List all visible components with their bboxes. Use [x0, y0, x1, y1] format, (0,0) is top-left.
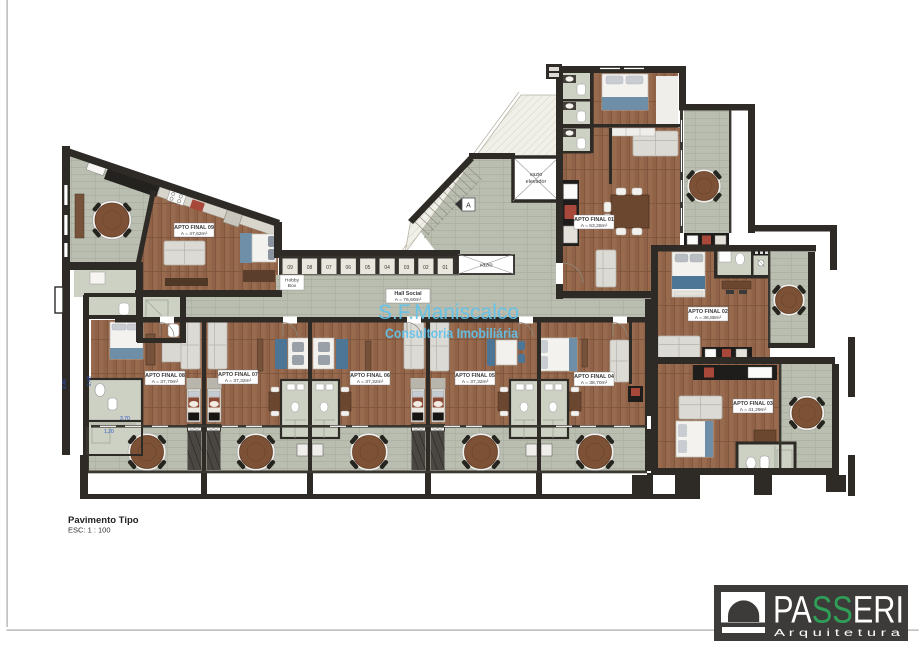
svg-text:Box: Box [288, 283, 297, 289]
svg-text:02: 02 [423, 265, 429, 271]
svg-text:APTO FINAL 03: APTO FINAL 03 [733, 401, 773, 407]
svg-text:vazio: vazio [479, 263, 492, 269]
svg-text:A = 37,70m²: A = 37,70m² [152, 379, 179, 385]
svg-text:03: 03 [404, 265, 410, 271]
svg-text:2,40: 2,40 [87, 376, 93, 386]
svg-text:05: 05 [365, 265, 371, 271]
svg-text:Hobby: Hobby [285, 278, 300, 284]
svg-text:APTO FINAL 05: APTO FINAL 05 [455, 373, 495, 379]
svg-text:A = 41,29m²: A = 41,29m² [740, 407, 767, 413]
svg-text:06: 06 [346, 265, 352, 271]
svg-text:Pavimento Tipo: Pavimento Tipo [68, 515, 139, 526]
svg-text:APTO FINAL 02: APTO FINAL 02 [688, 309, 728, 315]
svg-text:A r q u i t e t u r a: A r q u i t e t u r a [774, 628, 901, 639]
svg-text:Hall Social: Hall Social [394, 291, 422, 297]
svg-text:PASSERI: PASSERI [773, 590, 904, 632]
svg-text:APTO FINAL 04: APTO FINAL 04 [574, 374, 614, 380]
svg-text:APTO FINAL 06: APTO FINAL 06 [350, 373, 390, 379]
svg-text:A = 36,88m²: A = 36,88m² [695, 315, 722, 321]
svg-text:elevador: elevador [526, 179, 547, 185]
svg-text:APTO FINAL 08: APTO FINAL 08 [145, 373, 185, 379]
svg-text:09: 09 [287, 265, 293, 271]
svg-text:A = 47,62m²: A = 47,62m² [181, 231, 208, 237]
svg-text:A = 38,70m²: A = 38,70m² [581, 380, 608, 386]
svg-text:08: 08 [307, 265, 313, 271]
svg-text:2,40: 2,40 [62, 379, 68, 389]
svg-text:A: A [466, 203, 471, 210]
svg-text:04: 04 [384, 265, 390, 271]
svg-text:APTO FINAL 07: APTO FINAL 07 [218, 372, 258, 378]
svg-text:3,70: 3,70 [120, 416, 130, 422]
svg-text:Consultoria Imobiliária: Consultoria Imobiliária [385, 326, 518, 341]
svg-text:1,20: 1,20 [104, 429, 114, 435]
svg-text:vazio: vazio [530, 172, 543, 178]
svg-text:ESC: 1 : 100: ESC: 1 : 100 [68, 526, 111, 535]
svg-text:01: 01 [443, 265, 449, 271]
svg-text:A = 37,32m²: A = 37,32m² [462, 379, 489, 385]
svg-text:APTO FINAL 09: APTO FINAL 09 [174, 225, 214, 231]
svg-text:A = 63,28m²: A = 63,28m² [581, 223, 608, 229]
svg-text:S.F.Maniscalco: S.F.Maniscalco [378, 301, 519, 324]
svg-text:A = 37,32m²: A = 37,32m² [225, 378, 252, 384]
svg-text:A = 37,32m²: A = 37,32m² [357, 379, 384, 385]
svg-text:APTO FINAL 01: APTO FINAL 01 [574, 217, 614, 223]
svg-text:07: 07 [326, 265, 332, 271]
